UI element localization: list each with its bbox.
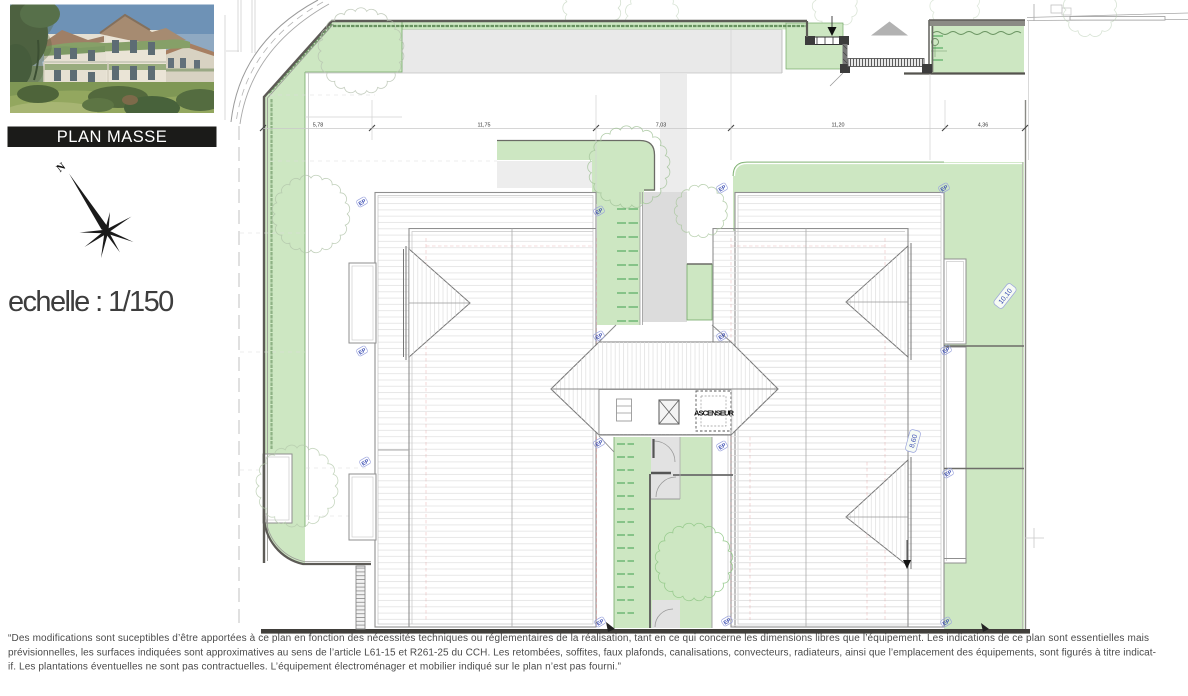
svg-text:prévisionnelles, les surfaces: prévisionnelles, les surfaces indiquées … — [8, 648, 1156, 659]
svg-text:ASCENSEUR: ASCENSEUR — [694, 409, 735, 418]
svg-text:echelle : 1/150: echelle : 1/150 — [8, 286, 173, 318]
svg-text:if. Les plantations éventuelle: if. Les plantations éventuelles ne sont … — [8, 662, 621, 673]
svg-text:7,03: 7,03 — [656, 123, 667, 129]
svg-text:4,36: 4,36 — [978, 123, 989, 129]
svg-text:N: N — [54, 160, 68, 174]
svg-text:EP: EP — [358, 347, 368, 356]
svg-text:EP: EP — [358, 198, 368, 207]
svg-text:EP: EP — [718, 184, 728, 193]
svg-text:EP: EP — [718, 442, 728, 451]
svg-text:PLAN MASSE: PLAN MASSE — [57, 128, 167, 146]
svg-text:EP: EP — [596, 618, 606, 627]
svg-text:11,20: 11,20 — [831, 123, 844, 129]
svg-text:“Des modifications sont sucept: “Des modifications sont suceptibles d’êt… — [8, 633, 1149, 644]
svg-text:5,78: 5,78 — [313, 123, 324, 129]
svg-text:11,75: 11,75 — [477, 123, 490, 129]
svg-text:EP: EP — [361, 458, 371, 467]
